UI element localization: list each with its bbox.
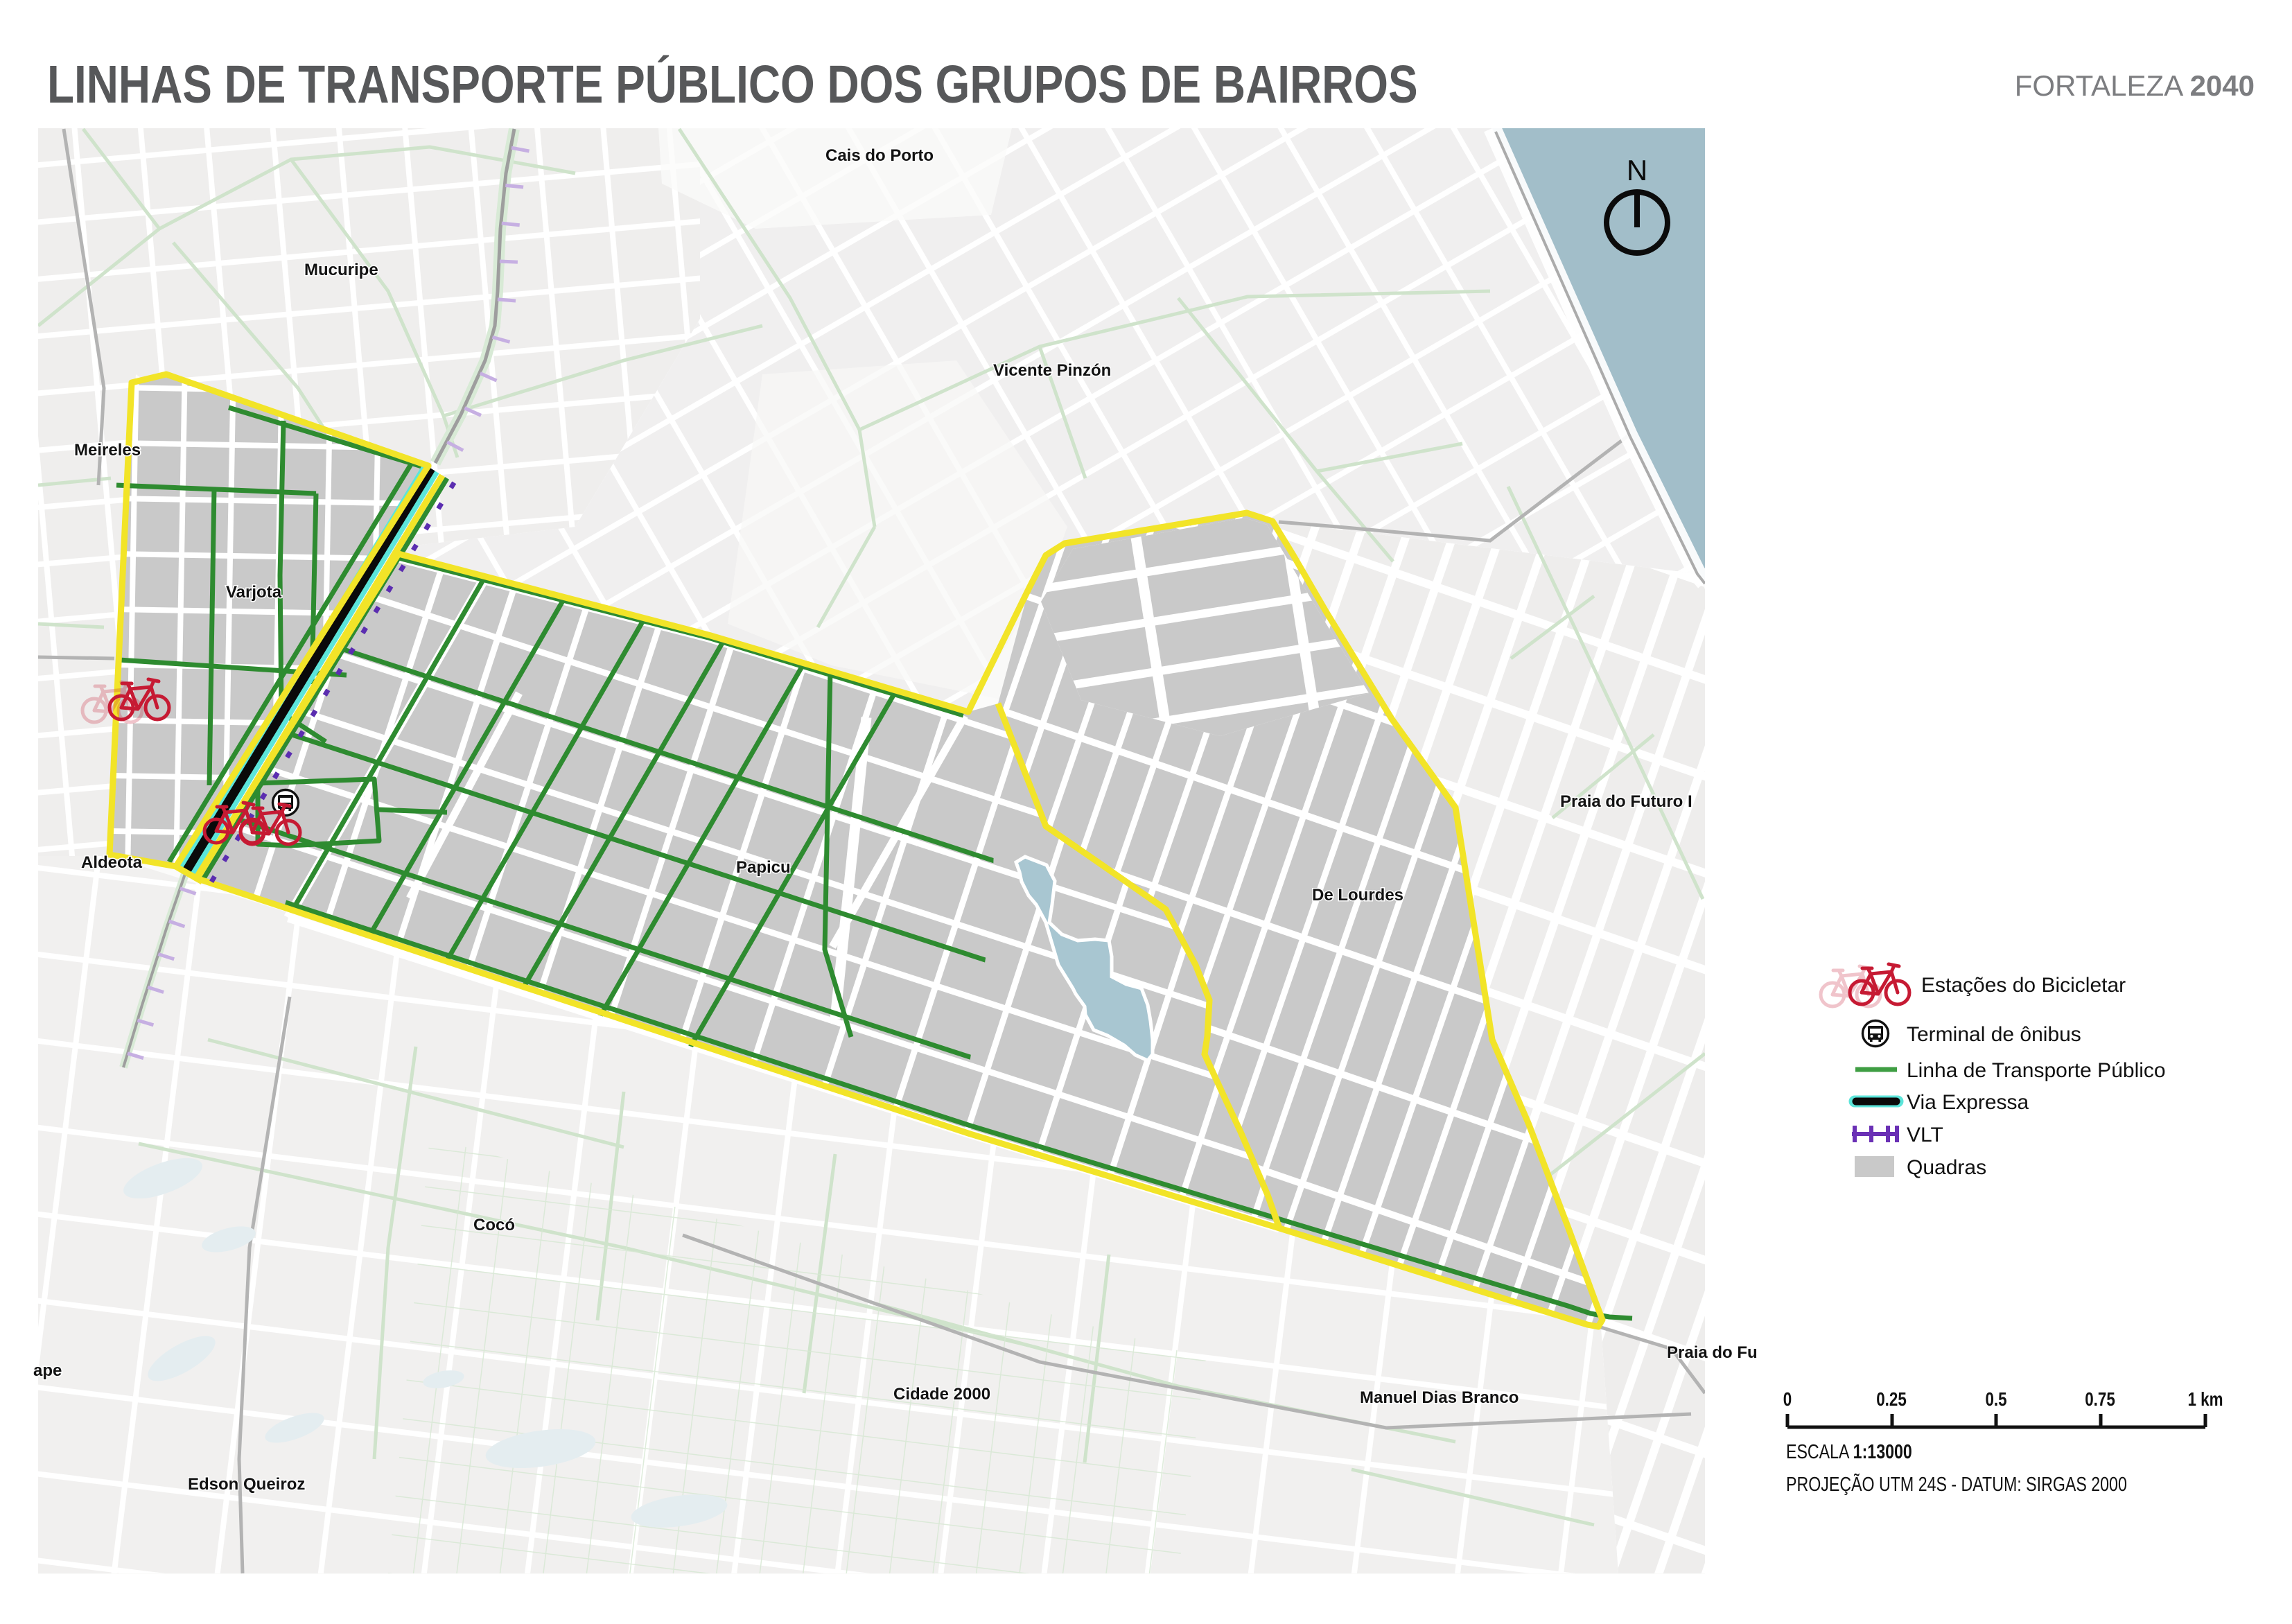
svg-text:Aldeota: Aldeota xyxy=(81,853,143,872)
svg-text:Cidade 2000: Cidade 2000 xyxy=(893,1385,990,1404)
svg-text:ape: ape xyxy=(33,1361,62,1380)
svg-text:Linha de Transporte Público: Linha de Transporte Público xyxy=(1907,1059,2166,1082)
svg-text:PROJEÇÃO UTM 24S - DATUM: SIRG: PROJEÇÃO UTM 24S - DATUM: SIRGAS 2000 xyxy=(1786,1472,2127,1495)
svg-text:Estações do Bicicletar: Estações do Bicicletar xyxy=(1921,974,2126,997)
svg-text:Cais do Porto: Cais do Porto xyxy=(825,146,934,165)
svg-text:0: 0 xyxy=(1783,1389,1792,1411)
svg-text:Mucuripe: Mucuripe xyxy=(304,261,378,279)
svg-text:De Lourdes: De Lourdes xyxy=(1312,886,1403,905)
svg-text:Terminal de ônibus: Terminal de ônibus xyxy=(1907,1023,2081,1046)
svg-text:Varjota: Varjota xyxy=(226,583,282,602)
svg-text:0.75: 0.75 xyxy=(2085,1389,2115,1411)
svg-text:LINHAS DE TRANSPORTE PÚBLICO D: LINHAS DE TRANSPORTE PÚBLICO DOS GRUPOS … xyxy=(47,54,1418,114)
svg-text:Praia do Fu: Praia do Fu xyxy=(1667,1343,1758,1362)
svg-text:Vicente Pinzón: Vicente Pinzón xyxy=(993,361,1111,380)
svg-text:ESCALA 1:13000: ESCALA 1:13000 xyxy=(1786,1440,1912,1463)
svg-text:Meireles: Meireles xyxy=(74,441,141,460)
svg-text:Quadras: Quadras xyxy=(1907,1156,1986,1179)
svg-text:1 km: 1 km xyxy=(2187,1389,2223,1411)
svg-text:Edson Queiroz: Edson Queiroz xyxy=(188,1475,305,1494)
svg-text:Via Expressa: Via Expressa xyxy=(1907,1091,2029,1114)
svg-text:Praia do Futuro I: Praia do Futuro I xyxy=(1560,792,1692,811)
svg-text:Papicu: Papicu xyxy=(736,858,791,877)
svg-text:0.25: 0.25 xyxy=(1876,1389,1907,1411)
svg-text:N: N xyxy=(1627,154,1647,186)
svg-text:0.5: 0.5 xyxy=(1985,1389,2006,1411)
svg-text:FORTALEZA 2040: FORTALEZA 2040 xyxy=(2015,69,2255,102)
svg-text:Cocó: Cocó xyxy=(473,1216,515,1234)
svg-text:Manuel Dias Branco: Manuel Dias Branco xyxy=(1360,1388,1519,1407)
svg-text:VLT: VLT xyxy=(1907,1124,1943,1146)
